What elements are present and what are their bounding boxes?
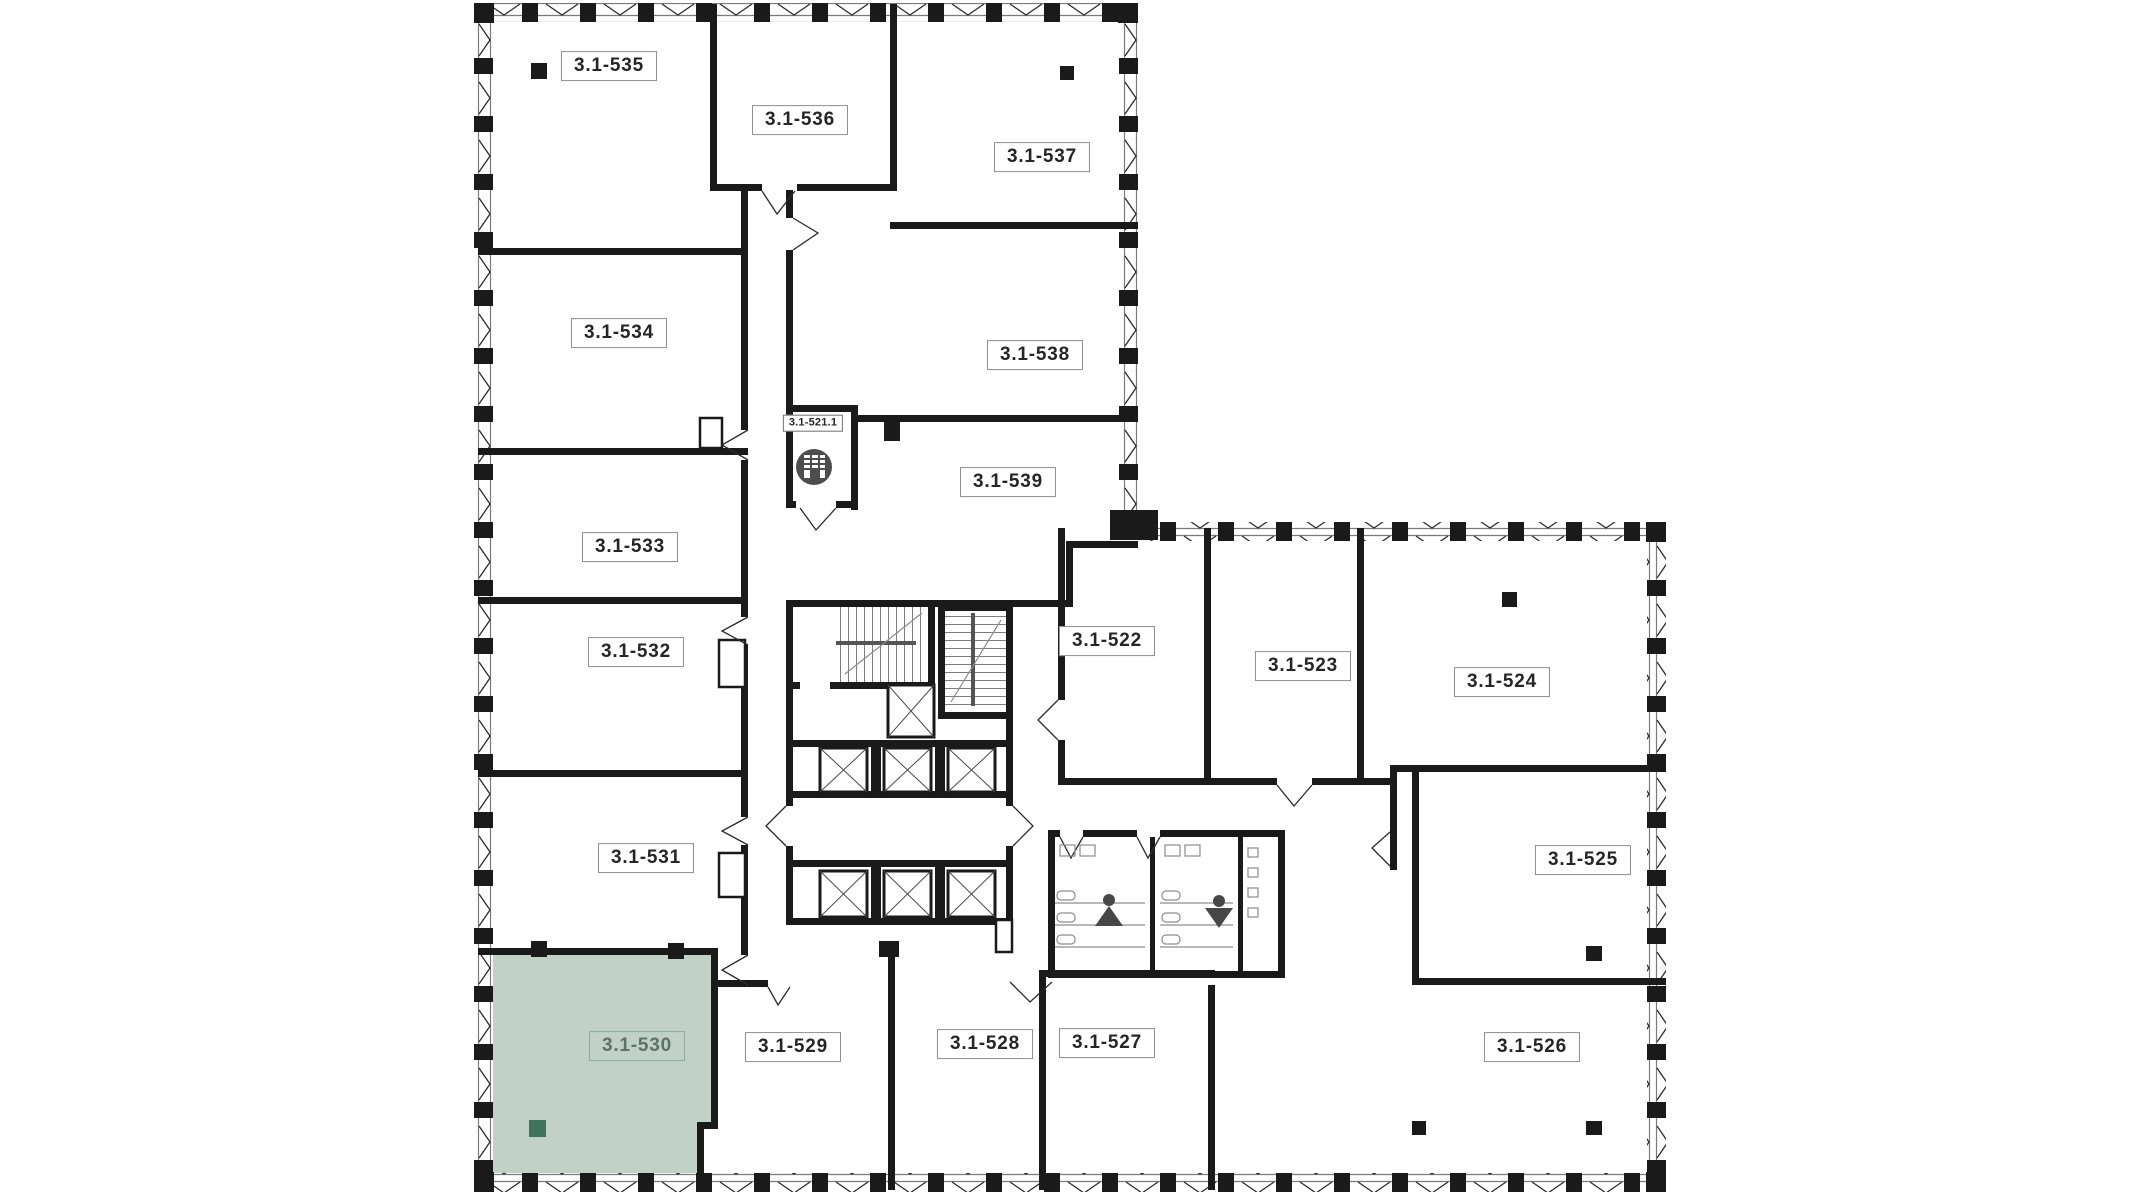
unit-label-3-1-523[interactable]: 3.1-523 <box>1255 651 1351 681</box>
wc-fixtures <box>1055 845 1258 947</box>
floor-plan-page: 3.1-535 3.1-536 3.1-537 3.1-534 3.1-521.… <box>0 0 2133 1200</box>
unit-label-3-1-527[interactable]: 3.1-527 <box>1059 1028 1155 1058</box>
floor-plan-drawing <box>0 0 2133 1200</box>
unit-label-3-1-532[interactable]: 3.1-532 <box>588 637 684 667</box>
unit-label-3-1-528[interactable]: 3.1-528 <box>937 1029 1033 1059</box>
unit-530-area[interactable] <box>480 953 712 1176</box>
unit-label-3-1-525[interactable]: 3.1-525 <box>1535 845 1631 875</box>
elevator-icon <box>820 685 995 917</box>
unit-label-3-1-530-selected[interactable]: 3.1-530 <box>589 1031 685 1061</box>
unit-label-3-1-531[interactable]: 3.1-531 <box>598 843 694 873</box>
unit-label-3-1-526[interactable]: 3.1-526 <box>1484 1032 1580 1062</box>
unit-label-3-1-539[interactable]: 3.1-539 <box>960 467 1056 497</box>
unit-label-3-1-538[interactable]: 3.1-538 <box>987 340 1083 370</box>
unit-label-3-1-521-1[interactable]: 3.1-521.1 <box>783 415 843 432</box>
wc-female-icon <box>1095 894 1123 926</box>
unit-label-3-1-536[interactable]: 3.1-536 <box>752 105 848 135</box>
unit-label-3-1-535[interactable]: 3.1-535 <box>561 51 657 81</box>
unit-label-3-1-524[interactable]: 3.1-524 <box>1454 667 1550 697</box>
unit-530-column <box>529 1120 546 1137</box>
unit-label-3-1-533[interactable]: 3.1-533 <box>582 532 678 562</box>
unit-label-3-1-522[interactable]: 3.1-522 <box>1059 626 1155 656</box>
wc-male-icon <box>1205 895 1233 928</box>
unit-label-3-1-534[interactable]: 3.1-534 <box>571 318 667 348</box>
unit-label-3-1-537[interactable]: 3.1-537 <box>994 142 1090 172</box>
unit-label-3-1-529[interactable]: 3.1-529 <box>745 1032 841 1062</box>
commercial-unit-icon <box>796 449 832 485</box>
